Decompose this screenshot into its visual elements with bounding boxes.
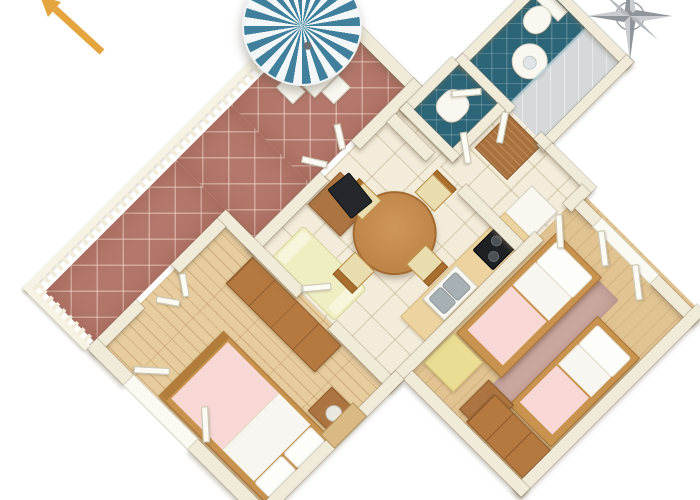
apartment-plan bbox=[0, 0, 700, 500]
compass-rose-icon bbox=[585, 0, 675, 62]
floorplan-stage bbox=[0, 0, 700, 500]
burner-icon bbox=[486, 249, 502, 265]
entrance-arrow-icon bbox=[28, 0, 118, 60]
